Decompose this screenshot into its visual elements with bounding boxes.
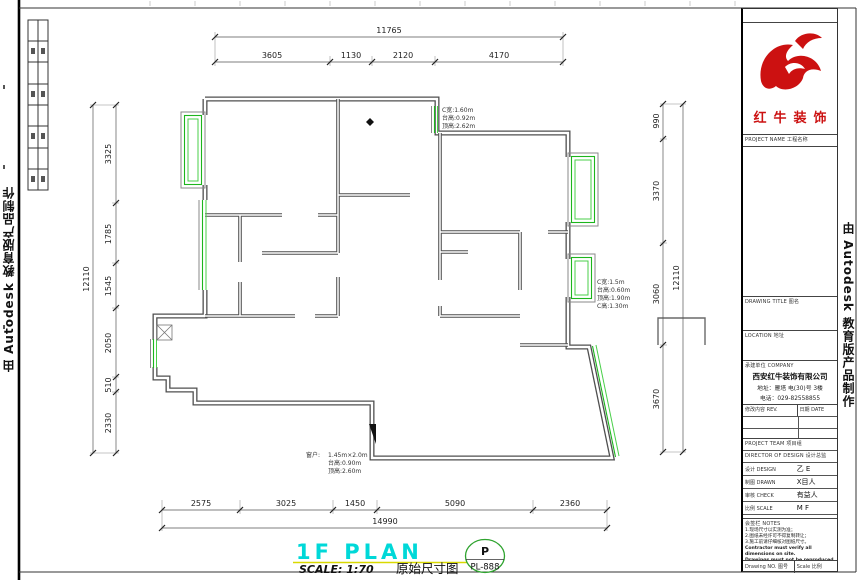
field-row: 制图 DRAWN X目人 <box>743 475 837 488</box>
window-left <box>199 200 206 290</box>
team-cell: PROJECT TEAM 项目组 DIRECTOR OF DESIGN 设计总监… <box>743 439 837 519</box>
location-cell: LOCATION 地址 <box>743 331 837 361</box>
plan-title-group: 1F PLAN SCALE: 1:70 原始尺寸图 P PL-888 <box>293 540 505 577</box>
drawing-no-label: Drawing NO. 图号 <box>743 561 795 573</box>
svg-text:顶高:1.90m: 顶高:1.90m <box>597 294 630 302</box>
field-label: 设计 DESIGN <box>743 466 797 473</box>
revision-table: 修改内容 REV. 日期 DATE <box>743 405 837 439</box>
svg-text:2575: 2575 <box>191 499 211 508</box>
annotation-window-top: C宽:1.60m 台高:0.92m 顶高:2.62m <box>442 106 475 130</box>
brand-name: 红牛装饰 <box>743 107 837 126</box>
sheet-border <box>19 0 856 580</box>
annotation-window-right: C宽:1.5m 台高:0.60m 顶高:1.90m C高:1.30m <box>597 278 630 310</box>
interior-walls <box>205 99 705 345</box>
ceiling-marker <box>366 118 374 126</box>
dimension-right: 990 3370 3060 3670 12110 <box>652 101 686 455</box>
svg-text:2050: 2050 <box>104 333 113 353</box>
top-ruler-ticks <box>150 1 735 6</box>
plan-scale: SCALE: 1:70 <box>299 563 374 576</box>
svg-text:PL-888: PL-888 <box>470 563 499 573</box>
svg-text:2330: 2330 <box>104 413 113 433</box>
field-row: 审核 CHECK 有益人 <box>743 488 837 501</box>
svg-text:5090: 5090 <box>445 499 465 508</box>
field-label: 比例 SCALE <box>743 505 797 512</box>
bay-window-right-top <box>568 153 598 226</box>
field-value: 乙 E <box>797 464 811 474</box>
field-label: 制图 DRAWN <box>743 479 797 486</box>
drawing-title-label: DRAWING TITLE 图名 <box>743 297 837 305</box>
logo-cell: 红牛装饰 <box>743 23 837 135</box>
drawing-title-cell: DRAWING TITLE 图名 <box>743 297 837 331</box>
revision-col1: 修改内容 REV. <box>743 405 798 416</box>
field-value: 有益人 <box>797 490 818 500</box>
svg-text:2120: 2120 <box>393 51 413 60</box>
redbull-logo-icon <box>743 29 837 107</box>
director-label: DIRECTOR OF DESIGN 设计总监 <box>743 450 837 462</box>
plan-subtitle: 原始尺寸图 <box>396 561 459 576</box>
bay-window-left <box>181 112 205 188</box>
svg-text:3605: 3605 <box>262 51 282 60</box>
revision-row <box>743 428 837 439</box>
svg-text:12110: 12110 <box>82 266 91 291</box>
svg-text:1785: 1785 <box>104 224 113 244</box>
svg-text:台高:0.60m: 台高:0.60m <box>597 286 630 294</box>
svg-text:1.45m×2.0m: 1.45m×2.0m <box>328 452 368 459</box>
svg-text:窗户:: 窗户: <box>306 451 320 459</box>
field-value: X目人 <box>797 477 816 487</box>
dimension-top: 11765 3605 1130 2120 4170 <box>212 26 566 66</box>
cad-sheet: { "watermark": { "text": "由 Autodesk 教育版… <box>0 0 860 580</box>
dimension-bottom: 2575 3025 1450 5090 2360 14990 <box>159 499 610 531</box>
svg-text:1545: 1545 <box>104 276 113 296</box>
company-phone: 电话：029-82558855 <box>743 393 837 402</box>
annotation-window-bottom: 窗户: 1.45m×2.0m 台高:0.90m 顶高:2.60m <box>306 451 368 475</box>
location-label: LOCATION 地址 <box>743 331 837 339</box>
svg-text:12110: 12110 <box>672 265 681 290</box>
field-value: M F <box>797 504 809 512</box>
autodesk-watermark-right: 由 Autodesk 教育版产品制作 <box>840 222 857 408</box>
svg-text:3060: 3060 <box>652 284 661 304</box>
svg-text:C高:1.30m: C高:1.30m <box>597 302 629 310</box>
dimension-left: 3325 1785 1545 2050 510 2330 12110 <box>82 102 119 456</box>
field-row: 设计 DESIGN 乙 E <box>743 462 837 475</box>
window-diagonal <box>593 345 620 457</box>
bay-window-right-mid <box>568 254 595 302</box>
field-row: 比例 SCALE M F <box>743 501 837 514</box>
svg-text:990: 990 <box>652 113 661 128</box>
floor-plan-drawing: C宽:1.60m 台高:0.92m 顶高:2.62m C宽:1.5m 台高:0.… <box>0 0 860 580</box>
svg-text:P: P <box>481 545 489 558</box>
svg-text:3325: 3325 <box>104 144 113 164</box>
project-blank-cell <box>743 147 837 297</box>
revision-col2: 日期 DATE <box>798 405 827 416</box>
svg-text:3025: 3025 <box>276 499 296 508</box>
project-label-cell: PROJECT NAME 工程名称 <box>743 135 837 147</box>
svg-text:11765: 11765 <box>376 26 401 35</box>
autodesk-watermark-left: 由 Autodesk 教育版产品制作 <box>0 186 17 372</box>
company-label: 承建单位 COMPANY <box>743 361 837 369</box>
svg-text:3670: 3670 <box>652 389 661 409</box>
svg-text:顶高:2.62m: 顶高:2.62m <box>442 122 475 130</box>
svg-text:4170: 4170 <box>489 51 509 60</box>
svg-text:1450: 1450 <box>345 499 365 508</box>
revision-row <box>743 416 837 428</box>
adjacent-unit-stub <box>658 318 705 345</box>
svg-text:C宽:1.5m: C宽:1.5m <box>597 278 625 286</box>
company-cell: 承建单位 COMPANY 西安红牛装饰有限公司 地址：雁塔 电(30)号 3楼 … <box>743 361 837 405</box>
svg-text:台高:0.90m: 台高:0.90m <box>328 459 361 467</box>
notes-label: 会签栏 NOTES <box>743 519 837 527</box>
team-label: PROJECT TEAM 项目组 <box>743 439 837 450</box>
scale-field-label: Scale 比例 <box>795 561 824 573</box>
notes-cell: 会签栏 NOTES 1.现场尺寸以实测为准； 2.图纸未经许可不得复制转让； 3… <box>743 519 837 561</box>
window-bottom-left <box>151 339 157 368</box>
company-name: 西安红牛装饰有限公司 <box>743 371 837 382</box>
svg-text:3370: 3370 <box>652 181 661 201</box>
title-block-top-cell <box>743 9 837 23</box>
project-label: PROJECT NAME 工程名称 <box>743 135 837 143</box>
title-block: 红牛装饰 PROJECT NAME 工程名称 DRAWING TITLE 图名 … <box>741 8 838 572</box>
field-label: 审核 CHECK <box>743 492 797 499</box>
svg-text:1130: 1130 <box>341 51 361 60</box>
svg-text:顶高:2.60m: 顶高:2.60m <box>328 467 361 475</box>
bottom-cell: Drawing NO. 图号 Scale 比例 <box>743 561 837 573</box>
note-line: Contractor must verify all dimensions on… <box>745 546 835 558</box>
shaft-hatch <box>157 325 172 340</box>
svg-text:14990: 14990 <box>372 517 397 526</box>
svg-text:2360: 2360 <box>560 499 580 508</box>
svg-text:C宽:1.60m: C宽:1.60m <box>442 106 474 114</box>
drawing-number-badge: P PL-888 <box>466 540 505 573</box>
svg-text:台高:0.92m: 台高:0.92m <box>442 114 475 122</box>
svg-text:510: 510 <box>104 377 113 392</box>
exterior-walls <box>155 99 612 458</box>
company-address: 地址：雁塔 电(30)号 3楼 <box>743 383 837 392</box>
